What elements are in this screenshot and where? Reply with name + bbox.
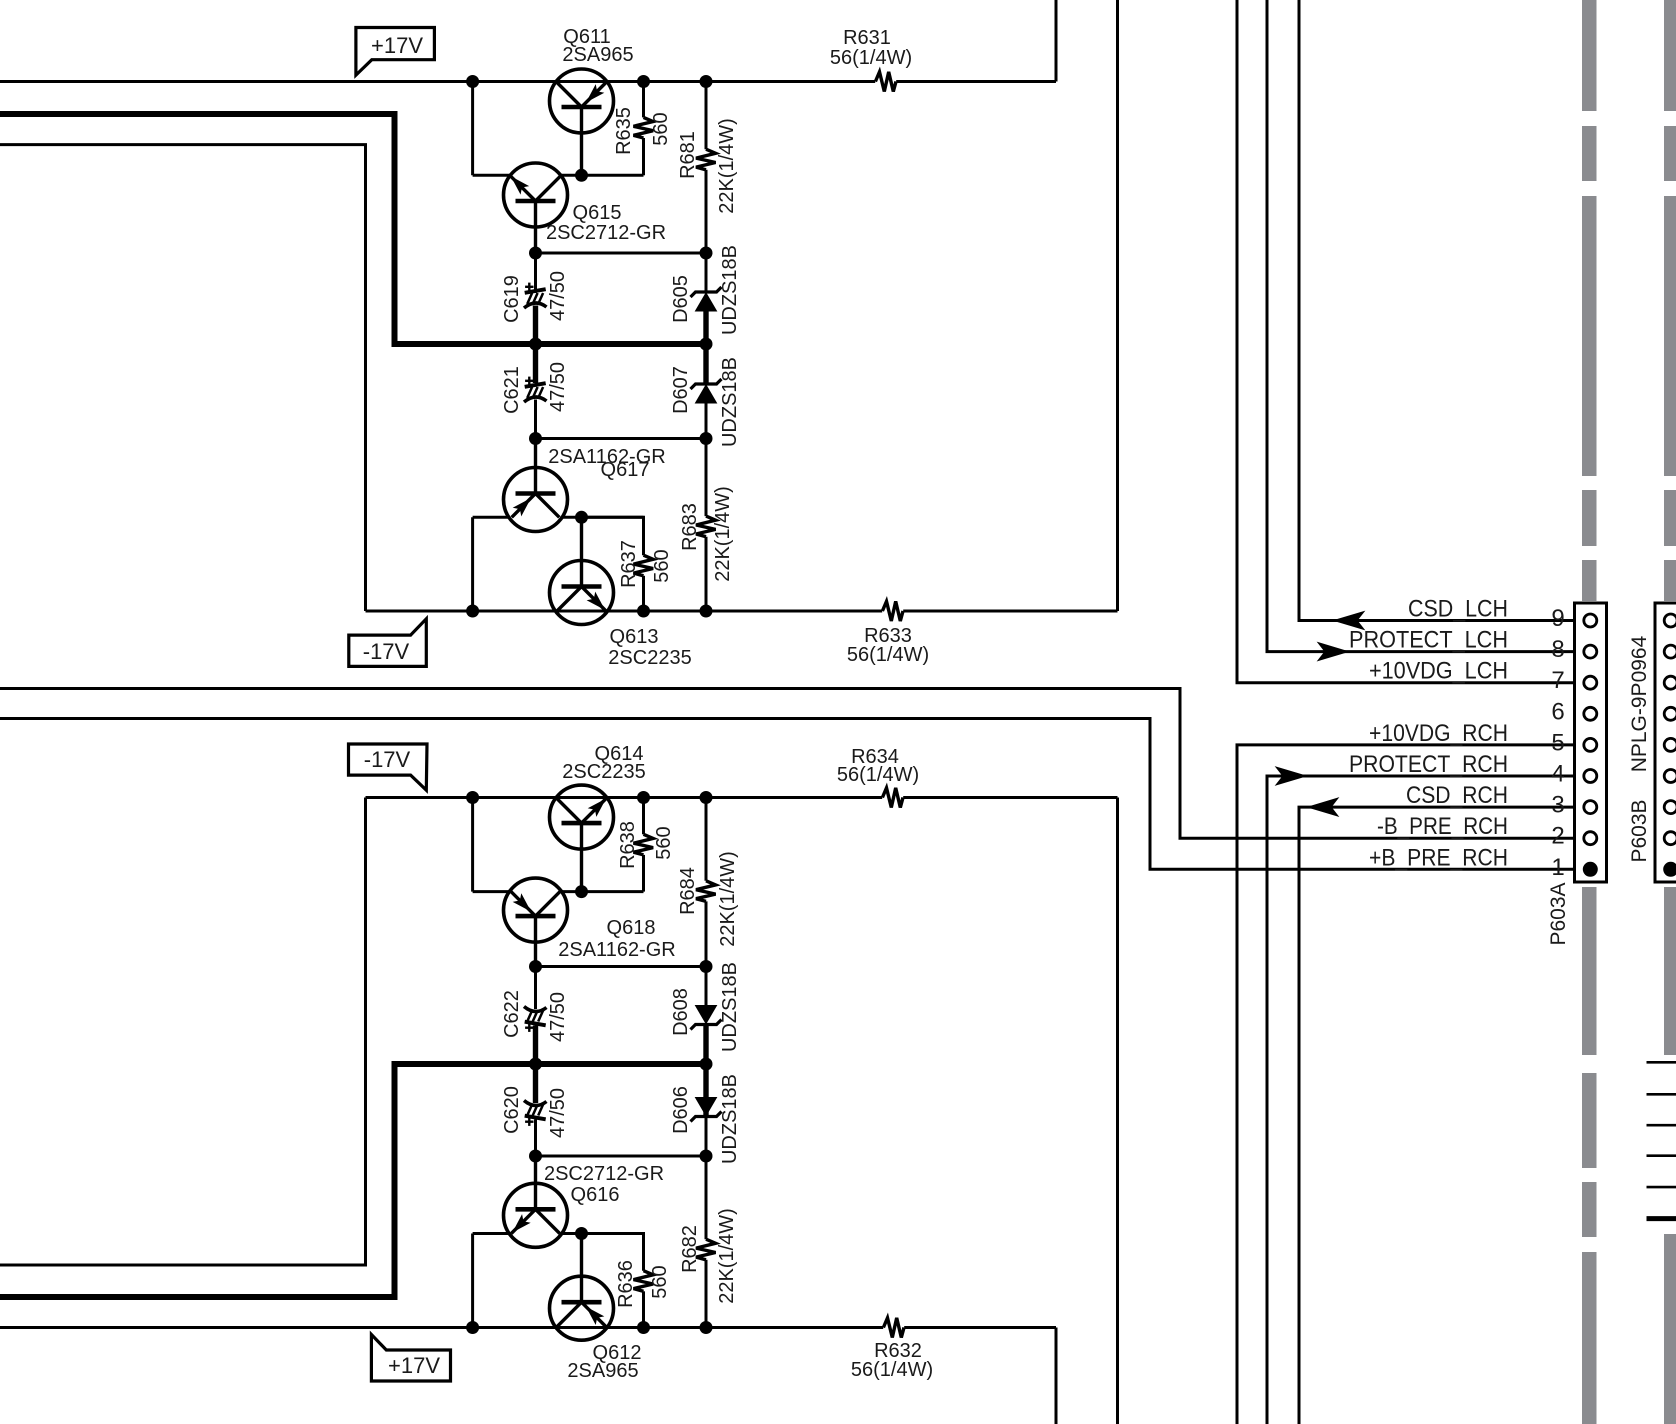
svg-text:R681: R681 [677,131,699,179]
svg-text:Q615: Q615 [573,202,622,224]
svg-text:2: 2 [1551,823,1564,850]
svg-text:R635: R635 [613,107,635,155]
svg-text:R631: R631 [843,27,891,49]
svg-text:4: 4 [1551,761,1564,788]
svg-text:560: 560 [651,549,673,582]
svg-text:5: 5 [1551,729,1564,756]
svg-text:2SA965: 2SA965 [567,1360,638,1382]
svg-text:3: 3 [1551,792,1564,819]
svg-text:2SC2235: 2SC2235 [608,647,691,669]
svg-text:47/50: 47/50 [547,271,569,321]
svg-text:9: 9 [1551,605,1564,632]
svg-text:22K(1/4W): 22K(1/4W) [712,486,734,582]
svg-text:+17V: +17V [371,33,423,58]
svg-text:56(1/4W): 56(1/4W) [830,47,912,69]
svg-text:47/50: 47/50 [547,992,569,1042]
svg-text:560: 560 [650,112,672,145]
svg-text:CSD_LCH: CSD_LCH [1408,596,1508,623]
svg-text:D608: D608 [670,988,692,1036]
svg-text:2SC2712-GR: 2SC2712-GR [546,222,666,244]
svg-text:R637: R637 [618,540,640,588]
svg-text:C620: C620 [501,1086,523,1134]
svg-text:UDZS18B: UDZS18B [719,245,741,335]
svg-text:8: 8 [1551,636,1564,663]
svg-text:560: 560 [649,1265,671,1298]
svg-text:D606: D606 [670,1086,692,1134]
svg-text:R682: R682 [679,1225,701,1273]
svg-text:C622: C622 [501,990,523,1038]
svg-text:2SA1162-GR: 2SA1162-GR [558,939,675,961]
svg-text:22K(1/4W): 22K(1/4W) [716,1208,738,1304]
svg-text:47/50: 47/50 [547,362,569,412]
svg-text:C621: C621 [501,366,523,414]
svg-text:P603A: P603A [1547,882,1570,945]
svg-text:D607: D607 [670,366,692,414]
svg-text:1: 1 [1551,854,1564,881]
svg-text:Q616: Q616 [571,1184,620,1206]
svg-text:7: 7 [1551,667,1564,694]
svg-text:6: 6 [1551,698,1564,725]
svg-text:47/50: 47/50 [547,1088,569,1138]
svg-text:NPLG-9P0964: NPLG-9P0964 [1628,635,1651,772]
svg-text:2SC2712-GR: 2SC2712-GR [544,1163,664,1185]
svg-text:+10VDG_RCH: +10VDG_RCH [1369,720,1508,747]
svg-text:56(1/4W): 56(1/4W) [851,1359,933,1381]
svg-text:Q617: Q617 [601,459,650,481]
svg-text:CSD_RCH: CSD_RCH [1406,782,1508,809]
svg-text:+17V: +17V [388,1353,440,1378]
svg-text:Q613: Q613 [610,626,659,648]
svg-text:+B_PRE_RCH: +B_PRE_RCH [1369,844,1508,871]
svg-text:56(1/4W): 56(1/4W) [837,764,919,786]
svg-text:-17V: -17V [364,747,411,772]
svg-text:UDZS18B: UDZS18B [719,357,741,447]
svg-text:22K(1/4W): 22K(1/4W) [716,118,738,214]
svg-text:+10VDG_LCH: +10VDG_LCH [1369,658,1508,685]
svg-text:56(1/4W): 56(1/4W) [847,644,929,666]
svg-text:P603B: P603B [1628,799,1651,862]
svg-text:2SC2235: 2SC2235 [562,761,645,783]
svg-text:Q618: Q618 [607,917,656,939]
svg-text:-17V: -17V [363,639,410,664]
svg-text:D605: D605 [670,275,692,323]
svg-text:PROTECT_RCH: PROTECT_RCH [1349,751,1508,778]
svg-text:-B_PRE_RCH: -B_PRE_RCH [1377,813,1508,840]
svg-text:C619: C619 [501,275,523,323]
svg-text:PROTECT_LCH: PROTECT_LCH [1349,627,1508,654]
svg-text:22K(1/4W): 22K(1/4W) [717,851,739,947]
svg-text:UDZS18B: UDZS18B [719,962,741,1052]
svg-text:R684: R684 [677,867,699,915]
svg-text:R683: R683 [679,503,701,551]
svg-text:560: 560 [653,826,675,859]
svg-text:R636: R636 [615,1260,637,1308]
svg-text:R638: R638 [617,821,639,869]
svg-text:2SA965: 2SA965 [562,44,633,66]
svg-text:UDZS18B: UDZS18B [719,1074,741,1164]
